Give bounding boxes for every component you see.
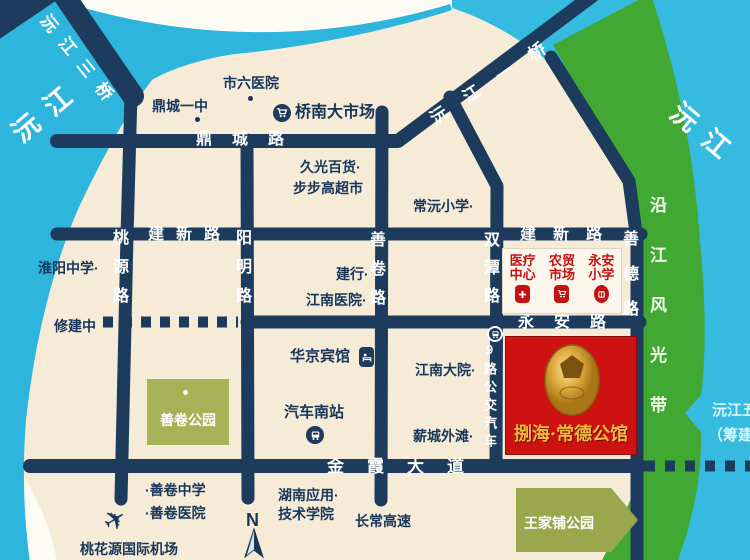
amenity-label: 中心 [510,268,536,282]
amenity-medical: 医疗 中心 [510,254,536,313]
location-map: 沅江 沅江 沅江三桥 沅江一桥 沿江风光带 沅江五 （筹建 鼎城路 建新路 建新… [0,0,750,560]
road-label-jianxin-east: 建新路 [520,227,619,243]
poi-jianhang-bank: 建行· [336,267,369,281]
poi-jiuguang-dept-store: 久光百货· [300,160,361,174]
park-dot [183,390,188,395]
compass-icon [242,528,266,560]
poi-shanjuan-middle: ·善卷中学 [145,483,206,497]
poi-hunan-applied-line1: 湖南应用· [278,488,339,502]
road-label-jinxia: 金霞大道 [327,458,487,475]
road-label-jianxin-west: 建新路 [148,227,232,243]
poi-huajing-hotel: 华京宾馆 [290,349,350,364]
amenity-label: 市场 [549,268,575,282]
hotel-icon [359,347,374,367]
road-label-shanjuan: 善卷路 [367,231,383,318]
shanjuan-park: 善卷公园 [147,379,229,445]
project-name: 捌海·常德公馆 [506,420,636,446]
poi-xincheng-waitan: 薪城外滩· [413,429,474,443]
road-label-yangming: 阳明路 [233,229,249,316]
emblem-icon [543,343,601,417]
road-label-shuangtan: 双潭路 [481,231,497,315]
poi-jiangnan-hospital: 江南医院· [306,293,367,307]
wangjiapu-park-label: 王家铺公园 [524,513,594,533]
road-label-dingcheng: 鼎城路 [196,132,304,148]
poi-south-bus-station: 汽车南站 [284,405,344,420]
amenity-market: 农贸 市场 [549,254,575,313]
medical-icon [515,285,530,303]
amenities-box: 医疗 中心 农贸 市场 永安 小学 [502,248,622,314]
poi-dot [195,117,200,122]
shanjuan-park-label: 善卷公园 [147,410,229,430]
road-label-taoyuan: 桃源路 [110,229,126,316]
poi-taohuayuan-airport: 桃花源国际机场 [80,542,178,556]
amenity-label: 永安 [588,254,614,268]
compass-label: N [246,511,259,529]
amenity-school: 永安 小学 [588,254,614,313]
poi-changyuan-primary: 常沅小学· [413,199,474,213]
bus-icon [306,426,324,444]
project-box: 捌海·常德公馆 [505,336,637,455]
under-construction-label: 修建中 [54,319,96,333]
poi-dingcheng-no1-school: 鼎城一中 [152,99,208,113]
poi-shanjuan-hospital: ·善卷医院 [145,506,206,520]
bus-route-9-label: 9路公交汽车 [483,342,496,452]
bus-stop-icon [487,326,503,342]
poi-huaiyang-middle: 淮阳中学· [38,261,99,275]
poi-bubugao-supermarket: 步步高超市 [293,181,363,195]
amenity-label: 小学 [588,268,614,282]
planned-bridge-label-line2: （筹建 [708,428,750,443]
poi-shiliu-hospital: 市六医院 [223,76,279,90]
poi-changchang-expressway: 长常高速 [355,514,411,528]
poi-dot [248,96,253,101]
amenity-label: 农贸 [549,254,575,268]
planned-bridge-label-line1: 沅江五 [712,403,750,418]
poi-qiaonan-market: 桥南大市场 [295,105,375,121]
amenity-label: 医疗 [510,254,536,268]
poi-hunan-applied-line2: 技术学院 [278,507,334,521]
road-label-yongan: 永安路 [518,315,626,331]
market-icon [554,285,569,303]
poi-jiangnan-compound: 江南大院· [415,363,476,377]
cart-icon [273,104,291,122]
road-label-shande: 善德路 [620,230,636,335]
greenbelt-label: 沿江风光带 [648,196,665,446]
school-icon [594,285,609,303]
